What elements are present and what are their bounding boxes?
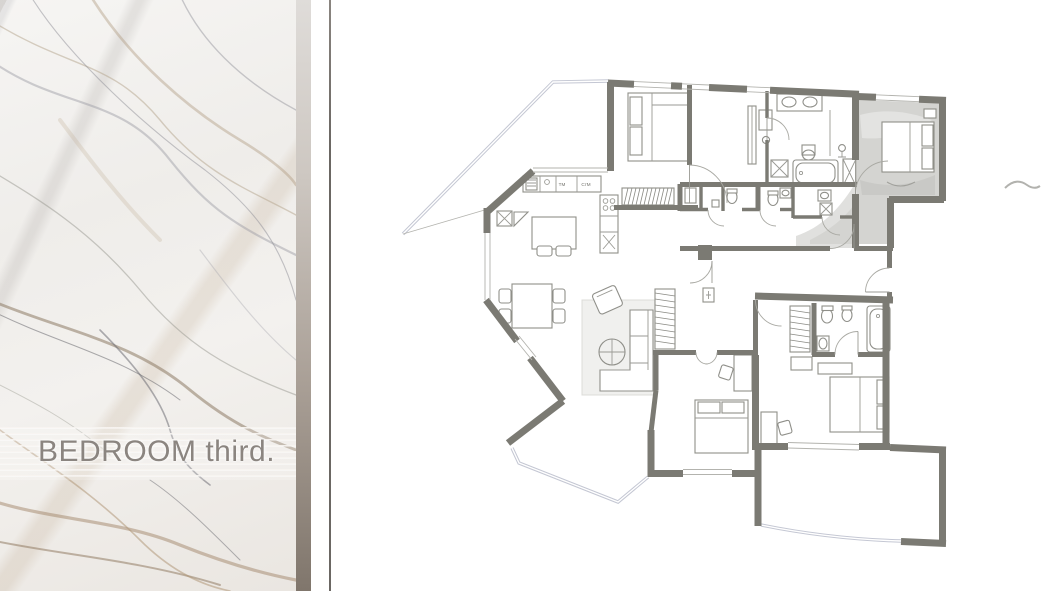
panel-box: [703, 288, 714, 302]
vertical-divider-line: [329, 0, 331, 591]
panel-edge-gradient: [296, 0, 311, 591]
label-appliance-left: ТМ: [559, 182, 566, 187]
bed-fourth-bedroom: [761, 363, 889, 446]
bed-second-bedroom: [695, 355, 752, 453]
wardrobe-master: [622, 188, 674, 205]
pencil-squiggle: [1005, 182, 1040, 188]
label-appliance-right: СтМ: [581, 182, 590, 187]
wardrobe-hall: [655, 289, 675, 349]
balcony-bottom-left: [512, 448, 648, 502]
balcony-bottom-right: [761, 525, 901, 541]
page-title: BEDROOM third.: [38, 433, 275, 471]
floor-plan: ТМ СтМ: [390, 60, 1050, 591]
slide: BEDROOM third.: [0, 0, 1050, 591]
bathroom-right: [817, 306, 890, 352]
marble-photo: BEDROOM third.: [0, 0, 296, 591]
bath-master: [771, 94, 856, 186]
wardrobe-suite: [790, 306, 812, 370]
bed-master: [628, 93, 690, 161]
marble-veins: [0, 0, 296, 591]
title-band: BEDROOM third.: [0, 427, 296, 480]
dining-set: [499, 284, 565, 328]
